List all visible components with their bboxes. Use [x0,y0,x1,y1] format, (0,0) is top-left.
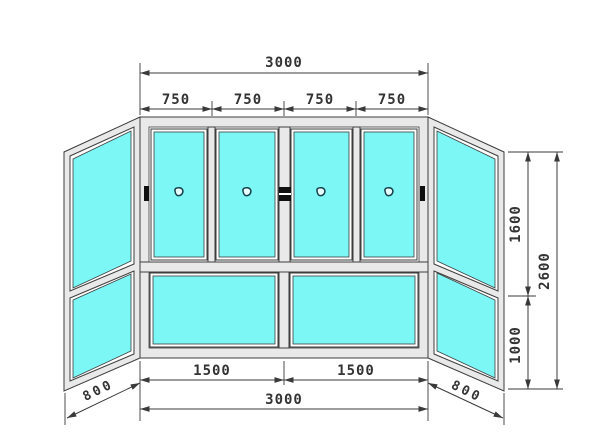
window-handle-icon [317,188,325,196]
dim-label-1500-1: 1500 [193,363,231,379]
glass-pane-side-left-upper [73,131,131,288]
window-handle-icon [175,188,183,196]
dim-label-800-right: 800 [449,378,485,406]
dim-label-2600: 2600 [537,252,553,290]
upper-mullion-3 [353,127,360,262]
front-window [140,117,428,358]
latch-right-icon [420,186,425,201]
dim-label-750-2: 750 [234,92,262,108]
latch-left-icon [144,186,149,201]
balcony-glazing-diagram: 3000 750 750 750 750 1500 1500 3000 1600… [0,0,600,447]
dim-label-1600: 1600 [508,205,524,243]
dim-label-750-1: 750 [162,92,190,108]
dim-label-1500-2: 1500 [337,363,375,379]
upper-mullion-1 [208,127,215,262]
dim-label-top-total: 3000 [265,55,303,71]
dim-label-bottom-total: 3000 [265,392,303,408]
dim-label-750-3: 750 [306,92,334,108]
side-panel-left [64,117,140,391]
side-panel-right [428,117,504,391]
lower-mullion-center [279,272,289,348]
latch-center-gap [279,193,291,195]
transom-bar [140,262,428,272]
window-handle-icon [243,188,251,196]
window-handle-icon [385,188,393,196]
glass-pane-lower-2 [293,276,415,344]
dim-label-1000: 1000 [508,326,524,364]
glass-pane-lower-1 [153,276,275,344]
glazing-drawing-canvas: 3000 750 750 750 750 1500 1500 3000 1600… [0,0,600,447]
glass-pane-side-right-upper [437,131,495,288]
dim-label-750-4: 750 [378,92,406,108]
